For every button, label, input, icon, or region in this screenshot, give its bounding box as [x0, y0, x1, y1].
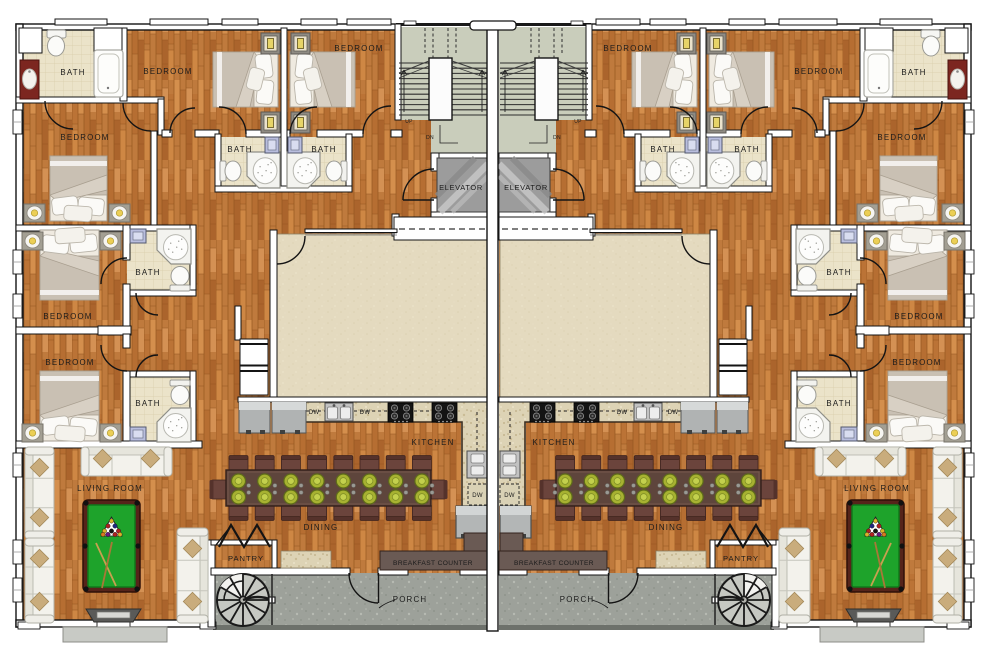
svg-text:BEDROOM: BEDROOM [794, 67, 843, 76]
svg-text:LIVING ROOM: LIVING ROOM [844, 484, 910, 493]
svg-text:PORCH: PORCH [560, 595, 595, 604]
svg-text:DINING: DINING [649, 523, 684, 532]
svg-text:BATH: BATH [650, 145, 675, 154]
svg-text:PANTRY: PANTRY [723, 554, 759, 563]
svg-text:BATH: BATH [734, 145, 759, 154]
svg-text:KITCHEN: KITCHEN [532, 438, 575, 447]
svg-text:BATH: BATH [135, 399, 160, 408]
svg-text:BREAKFAST COUNTER: BREAKFAST COUNTER [393, 560, 473, 567]
svg-text:BATH: BATH [135, 268, 160, 277]
svg-text:ELEVATOR: ELEVATOR [439, 183, 483, 192]
svg-text:BATH: BATH [60, 68, 85, 77]
svg-text:KITCHEN: KITCHEN [411, 438, 454, 447]
svg-text:DN: DN [553, 135, 561, 141]
svg-text:BEDROOM: BEDROOM [43, 312, 92, 321]
svg-text:BATH: BATH [311, 145, 336, 154]
svg-text:DINING: DINING [304, 523, 339, 532]
svg-text:ELEVATOR: ELEVATOR [504, 183, 548, 192]
svg-text:PANTRY: PANTRY [228, 554, 264, 563]
svg-text:BREAKFAST COUNTER: BREAKFAST COUNTER [514, 560, 594, 567]
svg-text:DW: DW [309, 410, 320, 416]
svg-text:DW: DW [472, 493, 483, 499]
svg-text:DW: DW [504, 493, 515, 499]
svg-text:PORCH: PORCH [393, 595, 428, 604]
svg-text:BEDROOM: BEDROOM [603, 44, 652, 53]
svg-text:BATH: BATH [826, 399, 851, 408]
svg-text:UP: UP [574, 119, 582, 125]
svg-text:DW: DW [668, 410, 679, 416]
svg-text:BEDROOM: BEDROOM [877, 133, 926, 142]
svg-text:DW: DW [360, 410, 371, 416]
svg-text:DW: DW [617, 410, 628, 416]
svg-text:LIVING ROOM: LIVING ROOM [77, 484, 143, 493]
svg-text:BEDROOM: BEDROOM [894, 312, 943, 321]
svg-text:BATH: BATH [901, 68, 926, 77]
svg-text:BEDROOM: BEDROOM [143, 67, 192, 76]
svg-text:BATH: BATH [227, 145, 252, 154]
svg-text:UP: UP [405, 119, 413, 125]
svg-text:BEDROOM: BEDROOM [892, 358, 941, 367]
svg-text:BEDROOM: BEDROOM [45, 358, 94, 367]
svg-text:BEDROOM: BEDROOM [334, 44, 383, 53]
svg-text:BATH: BATH [826, 268, 851, 277]
svg-text:DN: DN [426, 135, 434, 141]
svg-text:BEDROOM: BEDROOM [60, 133, 109, 142]
